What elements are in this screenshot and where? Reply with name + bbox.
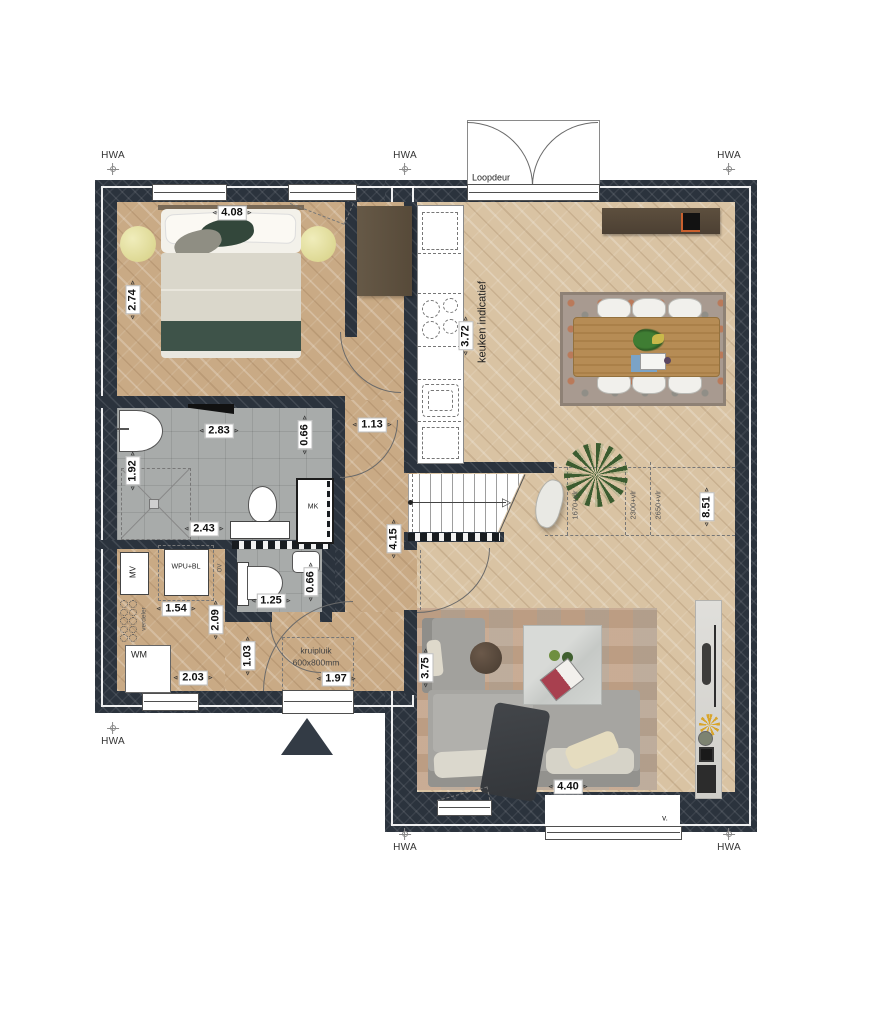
wall-wc-bottom-left: [225, 612, 272, 622]
tv-console-remote: [702, 643, 711, 685]
sideboard-stove: [681, 213, 700, 232]
hwa-crosshair-icon: [723, 828, 735, 840]
dim-bathroom-width: 2.83: [200, 424, 238, 439]
kitchen-counter-seam-2: [418, 293, 461, 294]
tv-console-strip: [714, 625, 716, 707]
loopdeur-label: Loopdeur: [472, 173, 510, 184]
side-table: [470, 642, 502, 674]
washing-machine-label: WM: [131, 650, 147, 661]
headroom-line-2650: [650, 462, 651, 535]
bedside-pouf-right: [300, 226, 336, 262]
crawl-hatch-label: kruipluik: [300, 646, 331, 657]
dim-hall-length: 4.15: [387, 520, 402, 558]
dim-hall-width: 1.13: [353, 418, 391, 433]
dim-utility-width: 1.54: [157, 602, 195, 617]
tv-speaker: [699, 747, 714, 762]
kitchen-upper-cabinet: [422, 212, 458, 250]
dim-utility-width-bottom: 2.03: [174, 671, 212, 686]
kitchen-counter-seam-4: [418, 379, 461, 380]
north-arrow: [281, 718, 333, 755]
kitchen-counter-seam-1: [418, 253, 461, 254]
hwa-marker-bottom-center: HWA: [393, 828, 417, 853]
dim-living-width: 3.75: [419, 649, 434, 687]
console-plant-pot: [698, 731, 713, 746]
hwa-marker-bottom-right: HWA: [717, 828, 741, 853]
dim-bathroom-depth: 1.92: [126, 452, 141, 490]
ov-label: OV: [216, 564, 227, 573]
dim-living-depth: 8.51: [700, 488, 715, 526]
wall-hall-living-door-jamb: [404, 542, 417, 550]
bed-foot-edge: [161, 351, 301, 358]
floor-plan: ▷: [0, 0, 874, 1030]
wall-wc-bottom-right: [320, 612, 332, 622]
hall-wardrobe: [357, 206, 412, 296]
kitchen-sink-inner: [428, 390, 453, 411]
headroom-label-1670: 1670+vlr: [570, 491, 581, 520]
bedroom-window-1: [152, 184, 227, 201]
loopdeur-threshold: [467, 184, 600, 201]
crawl-hatch-size-label: 600x800mm: [293, 658, 340, 669]
dim-wc-door: 0.66: [304, 563, 319, 601]
stair-base-dashed-wall: [408, 533, 500, 541]
cooktop-burner-1: [422, 300, 440, 318]
console-box: [697, 765, 716, 793]
kitchen-counter-seam-5: [418, 421, 461, 422]
stair-walk-line: [410, 502, 506, 503]
hwa-crosshair-icon: [399, 163, 411, 175]
table-plant-leaf: [652, 334, 664, 344]
kitchen-appliance: [422, 427, 459, 459]
dim-bedroom-width: 4.08: [213, 206, 251, 221]
cooktop-burner-2: [443, 298, 458, 313]
dim-kitchen-length: 3.72: [459, 317, 474, 355]
manifold: [120, 600, 137, 642]
bathroom-sink-tap: [117, 428, 129, 430]
headroom-zone-bottom-dashed: [545, 535, 735, 536]
shower-drain: [149, 499, 159, 509]
wall-wc-right: [322, 549, 335, 612]
bathroom-toilet-bowl: [248, 486, 277, 523]
headroom-label-2650: 2650+vlr: [653, 491, 664, 520]
dim-bathroom-door: 0.66: [298, 416, 313, 454]
kitchen-counter-seam-3: [418, 346, 461, 347]
hwa-label: HWA: [393, 150, 417, 161]
hwa-label: HWA: [717, 150, 741, 161]
bed-duvet: [161, 253, 301, 323]
hwa-label: HWA: [101, 150, 125, 161]
bed-throw-green: [161, 321, 301, 351]
utility-window: [142, 693, 199, 711]
bed: [158, 205, 304, 360]
dim-utility-depth: 2.09: [209, 601, 224, 639]
mv-label: MV: [128, 566, 139, 578]
sideboard: [602, 208, 720, 234]
table-magazines: [640, 353, 666, 370]
living-window-large: [545, 826, 682, 840]
meter-cupboard-label: MK: [308, 502, 319, 513]
bedside-pouf-left: [120, 226, 156, 262]
dim-wc-width: 1.25: [252, 594, 290, 609]
hwa-crosshair-icon: [399, 828, 411, 840]
living-window-small: [437, 800, 492, 816]
living-window-recess: [545, 795, 680, 827]
wall-hall-living-lower: [404, 610, 417, 695]
bathroom-toilet-cistern: [230, 521, 290, 539]
hwa-marker-bottom-left: HWA: [101, 722, 125, 747]
heat-pump-unit: [164, 549, 209, 596]
kitchen-note: keuken indicatief: [478, 281, 489, 363]
vent-label: v.: [662, 813, 668, 824]
hwa-marker-top-left: HWA: [101, 150, 125, 175]
stair-start-dot: [408, 500, 413, 505]
dim-corridor-depth: 1.03: [241, 637, 256, 675]
cooktop-burner-3: [422, 321, 440, 339]
hwa-label: HWA: [393, 842, 417, 853]
front-door: [282, 690, 354, 714]
hwa-crosshair-icon: [107, 163, 119, 175]
wall-bedroom-hall: [345, 202, 357, 337]
hwa-crosshair-icon: [723, 163, 735, 175]
hwa-marker-top-center: HWA: [393, 150, 417, 175]
cooktop-burner-4: [443, 319, 458, 334]
bed-duvet-fold: [161, 289, 301, 291]
kitchen-counter: [417, 205, 464, 464]
dim-bedroom-depth: 2.74: [126, 281, 141, 319]
hwa-crosshair-icon: [107, 722, 119, 734]
hwa-label: HWA: [717, 842, 741, 853]
dim-bathroom-width-bottom: 2.43: [185, 522, 223, 537]
manifold-label: verdeler: [139, 607, 150, 630]
coffee-table-plant-1: [549, 650, 560, 661]
table-bowl: [664, 357, 671, 364]
dim-sofa-zone-width: 4.40: [549, 780, 587, 795]
meter-cupboard-door-dashes: [327, 481, 330, 537]
stair-direction-arrow: ▷: [502, 495, 511, 509]
hwa-marker-top-right: HWA: [717, 150, 741, 175]
wall-bathroom-hall-upper: [332, 408, 345, 420]
bedroom-window-2: [288, 184, 357, 201]
dim-entry-width: 1.97: [317, 672, 355, 687]
headroom-label-2300: 2300+vlr: [628, 491, 639, 520]
living-door-leaf-dashed: [420, 550, 421, 610]
hwa-label: HWA: [101, 736, 125, 747]
wall-utility-wc: [225, 549, 237, 612]
heat-pump-label: WPU+BL: [172, 562, 201, 573]
